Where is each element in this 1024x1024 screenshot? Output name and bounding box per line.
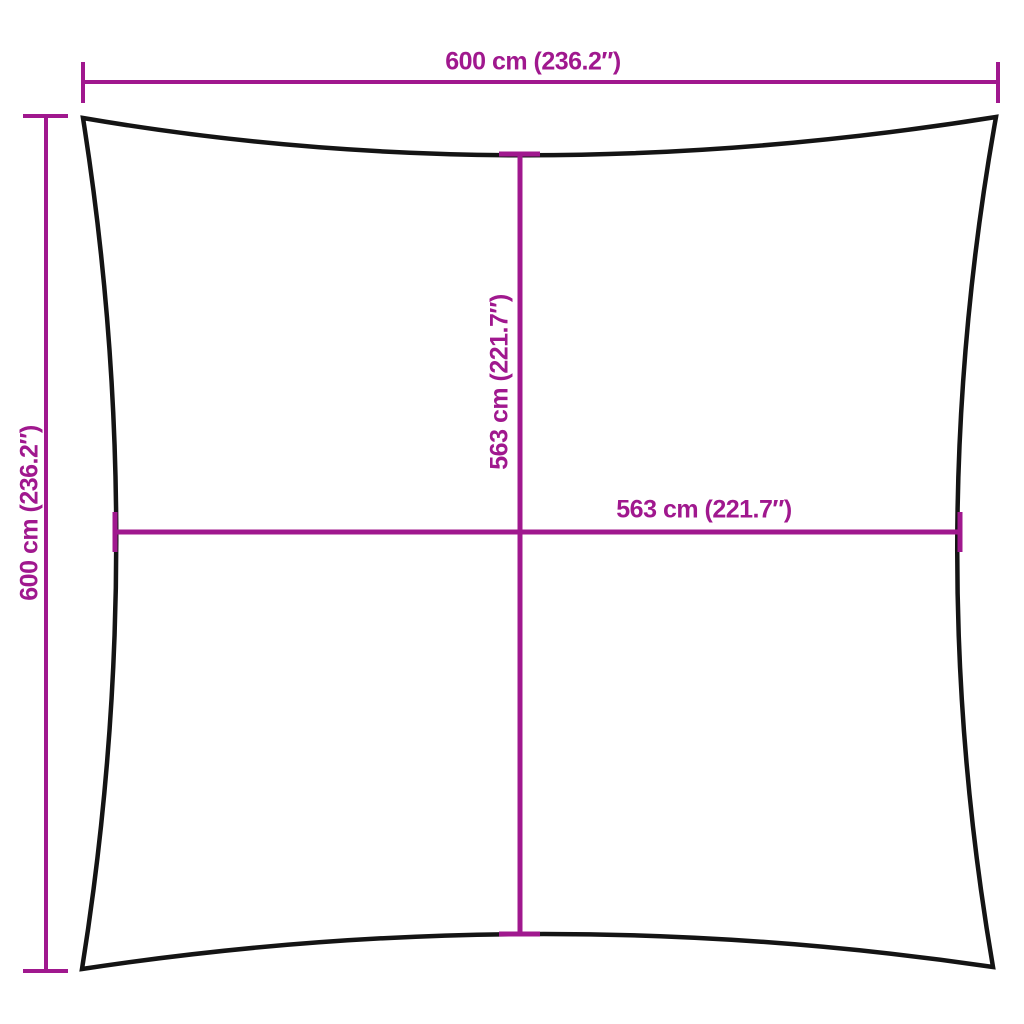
diagram-canvas <box>0 0 1024 1024</box>
left-height-label: 600 cm (236.2″) <box>18 425 43 600</box>
inner-height-label: 563 cm (221.7″) <box>488 294 513 469</box>
shade-sail-outline <box>82 117 996 969</box>
inner-width-label: 563 cm (221.7″) <box>616 498 791 523</box>
product-dimension-diagram: 600 cm (236.2″) 600 cm (236.2″) 563 cm (… <box>0 0 1024 1024</box>
top-width-label: 600 cm (236.2″) <box>445 50 620 75</box>
